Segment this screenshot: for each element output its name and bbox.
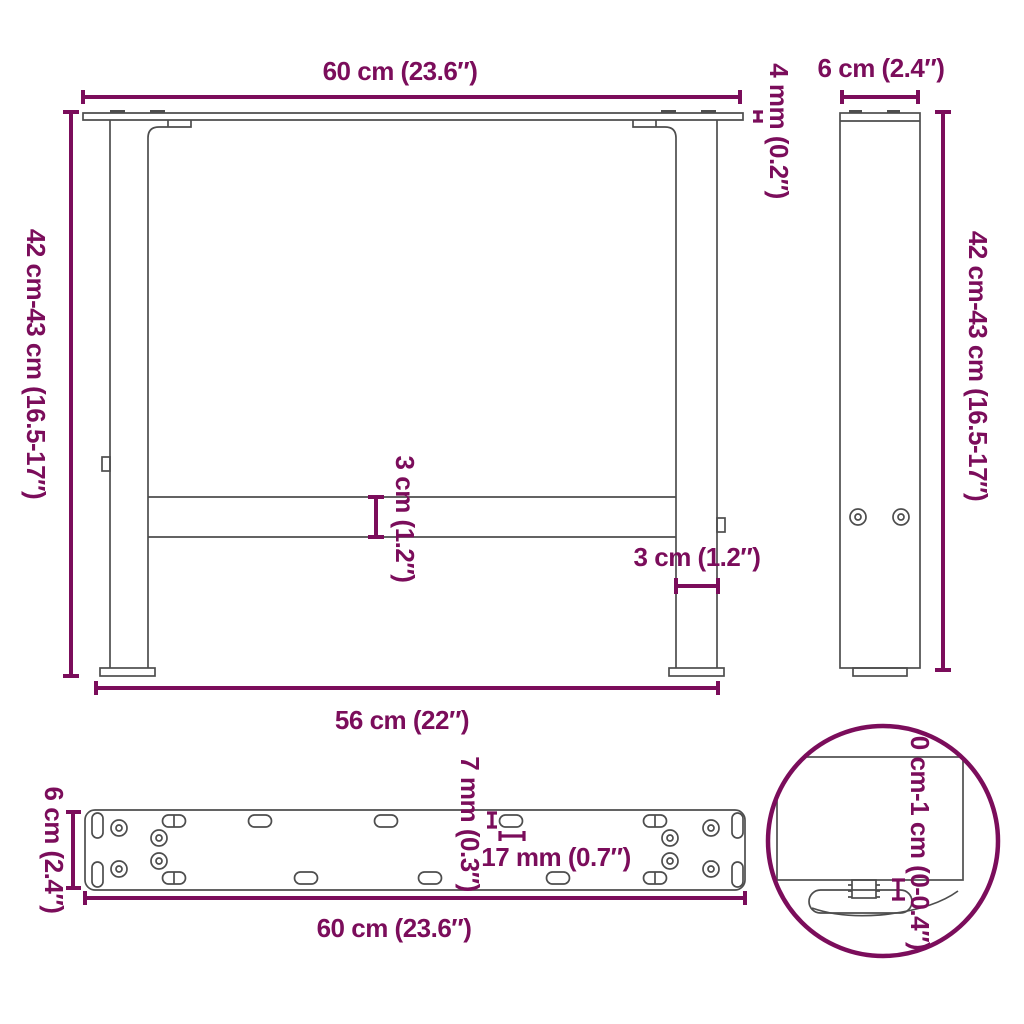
slot-hole — [249, 815, 272, 827]
left-leg-inner-edge — [148, 120, 191, 668]
bolt-center — [898, 514, 904, 520]
bolt-center — [708, 866, 714, 872]
screw-tab — [887, 110, 900, 114]
detail-drawing — [777, 757, 963, 916]
screw-tab — [150, 110, 165, 114]
bolt — [850, 509, 866, 525]
slot-hole — [732, 813, 743, 838]
slot-hole — [732, 862, 743, 887]
right-foot — [669, 668, 724, 676]
bolt — [151, 853, 167, 869]
bolt-center — [667, 858, 673, 864]
plate-hole-spacing-label: 17 mm (0.7″) — [481, 844, 631, 870]
screw-tab — [110, 110, 125, 114]
front-crossbar-height-label: 3 cm (1.2″) — [392, 456, 418, 583]
detail-foot-pad-sweep — [812, 891, 958, 916]
front-view-drawing — [83, 110, 743, 676]
bolt — [662, 853, 678, 869]
front-leg-width-label: 3 cm (1.2″) — [634, 544, 761, 570]
side-depth-label: 6 cm (2.4″) — [818, 55, 945, 81]
dim-line-hole-diameter — [487, 813, 497, 827]
detail-foot-stem — [852, 880, 876, 898]
plate-width-label: 60 cm (23.6″) — [317, 915, 472, 941]
dim-line-plate-width — [85, 891, 745, 905]
bolt-center — [708, 825, 714, 831]
dimension-diagram: 60 cm (23.6″) 4 mm (0.2″) 42 cm-43 cm (1… — [0, 0, 1024, 1024]
bolt-center — [116, 866, 122, 872]
slot-hole — [92, 813, 103, 838]
foot-adjustment-range-label: 0 cm-1 cm (0-0.4″) — [907, 736, 933, 950]
dim-line-height-right — [935, 112, 951, 670]
front-height-label: 42 cm-43 cm (16.5-17″) — [23, 229, 49, 499]
slot-hole — [500, 815, 523, 827]
screw-tab — [849, 110, 862, 114]
bolt — [703, 861, 719, 877]
dim-line-base-width — [96, 681, 718, 695]
dim-line-depth — [842, 90, 918, 104]
screw-tab — [661, 110, 676, 114]
side-foot — [853, 668, 907, 676]
mounting-plate-outline — [85, 810, 745, 890]
plate-depth-label: 6 cm (2.4″) — [41, 787, 67, 914]
dim-line-top-width — [83, 90, 740, 104]
bolt — [151, 830, 167, 846]
slot-hole — [92, 862, 103, 887]
front-base-width-label: 56 cm (22″) — [335, 707, 469, 733]
bolt-center — [667, 835, 673, 841]
bolt-center — [156, 835, 162, 841]
bolt — [662, 830, 678, 846]
side-height-label: 42 cm-43 cm (16.5-17″) — [965, 231, 991, 501]
front-plate-thickness-label: 4 mm (0.2″) — [766, 63, 792, 199]
bolt — [111, 820, 127, 836]
front-view-dimensions — [63, 90, 763, 695]
left-foot — [100, 668, 155, 676]
side-view-dimensions — [842, 90, 951, 670]
slot-hole — [547, 872, 570, 884]
bolt-center — [116, 825, 122, 831]
bolt — [703, 820, 719, 836]
side-leg-body — [840, 113, 920, 668]
dim-line-leg-width — [676, 578, 718, 594]
slot-hole — [419, 872, 442, 884]
detail-leg-bottom — [777, 757, 963, 880]
plate-hole-diameter-label: 7 mm (0.3″) — [457, 756, 483, 892]
dim-line-plate-thickness — [753, 112, 763, 121]
dim-line-crossbar-height — [368, 497, 384, 537]
dim-line-hole-spacing — [500, 831, 524, 841]
side-view-drawing — [840, 110, 920, 676]
screw-tab — [701, 110, 716, 114]
bolt — [893, 509, 909, 525]
slot-hole — [295, 872, 318, 884]
bolt-center — [855, 514, 861, 520]
plate-top-view-dimensions — [66, 812, 745, 905]
slot-hole — [375, 815, 398, 827]
plate-top-view-drawing — [85, 810, 745, 890]
bolt — [111, 861, 127, 877]
right-leg-inner-edge — [633, 120, 676, 668]
front-top-width-label: 60 cm (23.6″) — [323, 58, 478, 84]
dim-line-height-left — [63, 112, 79, 676]
left-leg-tab — [102, 457, 110, 471]
front-top-plate — [83, 113, 743, 120]
bolt-center — [156, 858, 162, 864]
detail-circle — [768, 726, 998, 956]
right-leg-tab — [717, 518, 725, 532]
